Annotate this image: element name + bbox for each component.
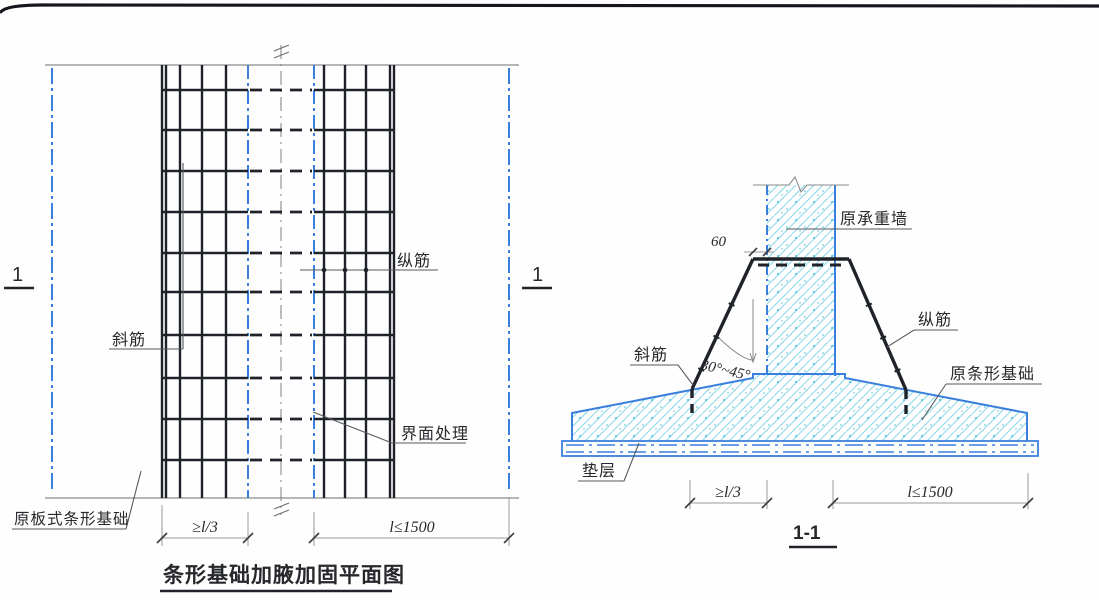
section-longitudinal-text: 纵筋 — [918, 311, 952, 329]
plan-view: 1 1 斜筋 纵筋 界面处理 原板式条形基础 — [4, 45, 552, 591]
section-longitudinal-leader — [887, 330, 958, 347]
plan-transverse-bars — [162, 90, 394, 460]
angle-arc — [719, 338, 752, 360]
section-diagonal-leader — [630, 365, 693, 385]
drawing-canvas: 1 1 斜筋 纵筋 界面处理 原板式条形基础 — [0, 0, 1099, 600]
section-diagonal-text: 斜筋 — [634, 346, 668, 364]
angle-range-text: 30°~45° — [698, 357, 751, 384]
leader-dot — [322, 268, 327, 273]
longitudinal-bar-text: 纵筋 — [397, 252, 431, 270]
drawing-sheet: 1 1 斜筋 纵筋 界面处理 原板式条形基础 — [0, 0, 1099, 600]
diagonal-bar-text: 斜筋 — [112, 331, 146, 349]
interface-treatment-text: 界面处理 — [401, 425, 469, 443]
bedding-text: 垫层 — [582, 462, 616, 480]
plan-hidden-bars — [250, 90, 312, 460]
plan-section-mark-right: 1 — [522, 264, 552, 288]
plan-title-text: 条形基础加腋加固平面图 — [163, 563, 405, 587]
section-dim-left-text: ≥l/3 — [715, 484, 741, 501]
plan-dim-right-text: l≤1500 — [389, 519, 434, 536]
offset-dim-text: 60 — [711, 234, 727, 250]
offset-dimension: 60 — [711, 234, 774, 256]
section-label-longitudinal-bar: 纵筋 — [887, 311, 958, 347]
plan-title: 条形基础加腋加固平面图 — [160, 563, 405, 591]
original-foundation-text: 原板式条形基础 — [14, 510, 130, 528]
section-mark-1-right: 1 — [532, 264, 543, 286]
plan-section-mark-left: 1 — [4, 264, 34, 288]
leader-dot — [343, 268, 348, 273]
plan-label-longitudinal-bar: 纵筋 — [300, 252, 438, 272]
wall-hatch — [767, 185, 835, 376]
bearing-wall-text: 原承重墙 — [840, 210, 908, 228]
plan-dimensions: ≥l/3 l≤1500 — [157, 497, 514, 546]
section-dimensions: ≥l/3 l≤1500 — [685, 473, 1033, 509]
section-label-diagonal-bar: 斜筋 — [630, 346, 693, 385]
plan-label-original-foundation: 原板式条形基础 — [12, 471, 141, 529]
section-mark-1-left: 1 — [12, 264, 23, 286]
plan-dim-left-text: ≥l/3 — [192, 519, 218, 536]
section-label-bedding: 垫层 — [578, 443, 639, 481]
section-title-text: 1-1 — [793, 523, 821, 544]
section-title: 1-1 — [789, 523, 837, 547]
section-view: 30°~45° 60 原承重墙 纵筋 斜筋 原条形基础 — [562, 177, 1042, 547]
bedding-outline — [562, 441, 1038, 456]
plan-label-diagonal-bar: 斜筋 — [109, 163, 183, 349]
sheet-frame-top — [0, 5, 1099, 13]
section-foundation-text: 原条形基础 — [950, 365, 1035, 383]
leader-dot — [364, 268, 369, 273]
section-dim-right-text: l≤1500 — [907, 484, 952, 501]
